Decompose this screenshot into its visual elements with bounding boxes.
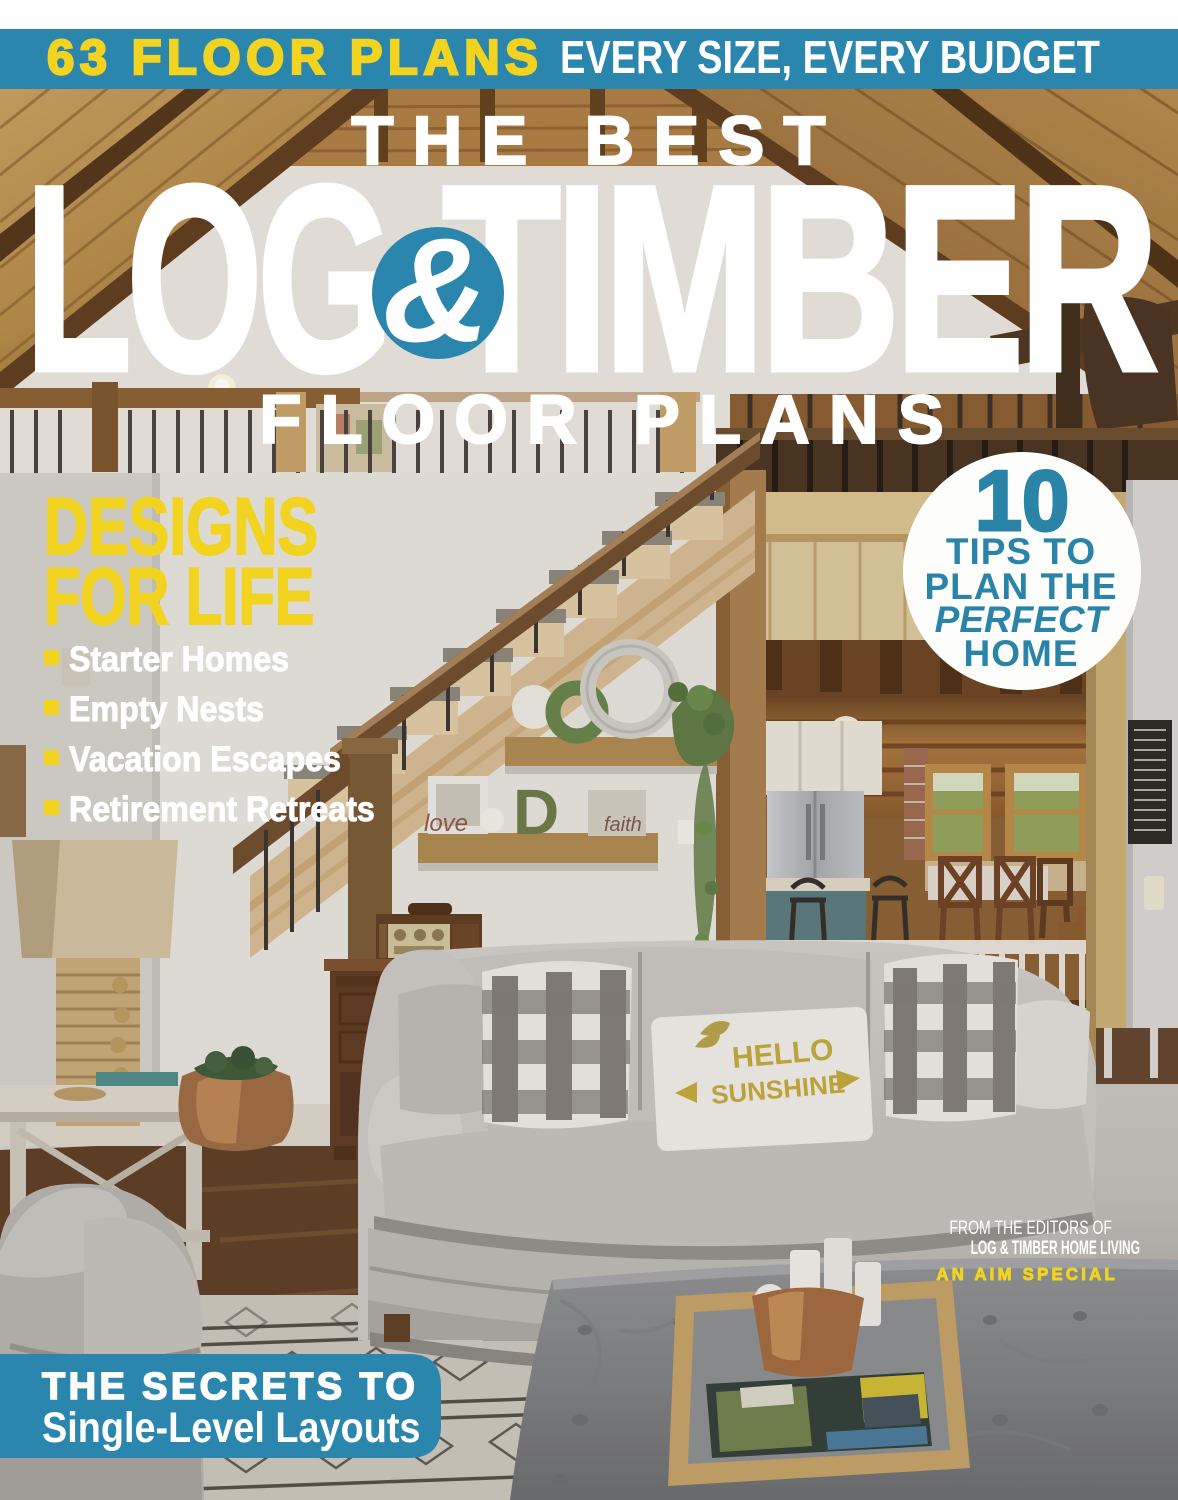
svg-text:Single-Level Layouts: Single-Level Layouts <box>42 1403 420 1452</box>
svg-text:LOG & TIMBER HOME LIVING: LOG & TIMBER HOME LIVING <box>971 1238 1140 1258</box>
svg-text:63 FLOOR PLANS: 63 FLOOR PLANS <box>47 31 543 85</box>
svg-text:Vacation Escapes: Vacation Escapes <box>69 741 341 780</box>
svg-text:HOME: HOME <box>964 633 1079 674</box>
svg-text:Empty Nests: Empty Nests <box>69 691 264 730</box>
svg-text:FOR LIFE: FOR LIFE <box>44 552 314 642</box>
svg-text:&: & <box>383 208 490 373</box>
svg-text:Retirement Retreats: Retirement Retreats <box>69 791 375 830</box>
svg-text:EVERY SIZE, EVERY BUDGET: EVERY SIZE, EVERY BUDGET <box>560 31 1100 83</box>
svg-text:FROM THE EDITORS OF: FROM THE EDITORS OF <box>949 1217 1112 1239</box>
svg-text:FLOOR PLANS: FLOOR PLANS <box>259 381 963 458</box>
svg-text:Starter Homes: Starter Homes <box>69 641 289 680</box>
svg-text:THE SECRETS TO: THE SECRETS TO <box>42 1366 418 1408</box>
svg-text:AN AIM SPECIAL: AN AIM SPECIAL <box>936 1263 1118 1284</box>
